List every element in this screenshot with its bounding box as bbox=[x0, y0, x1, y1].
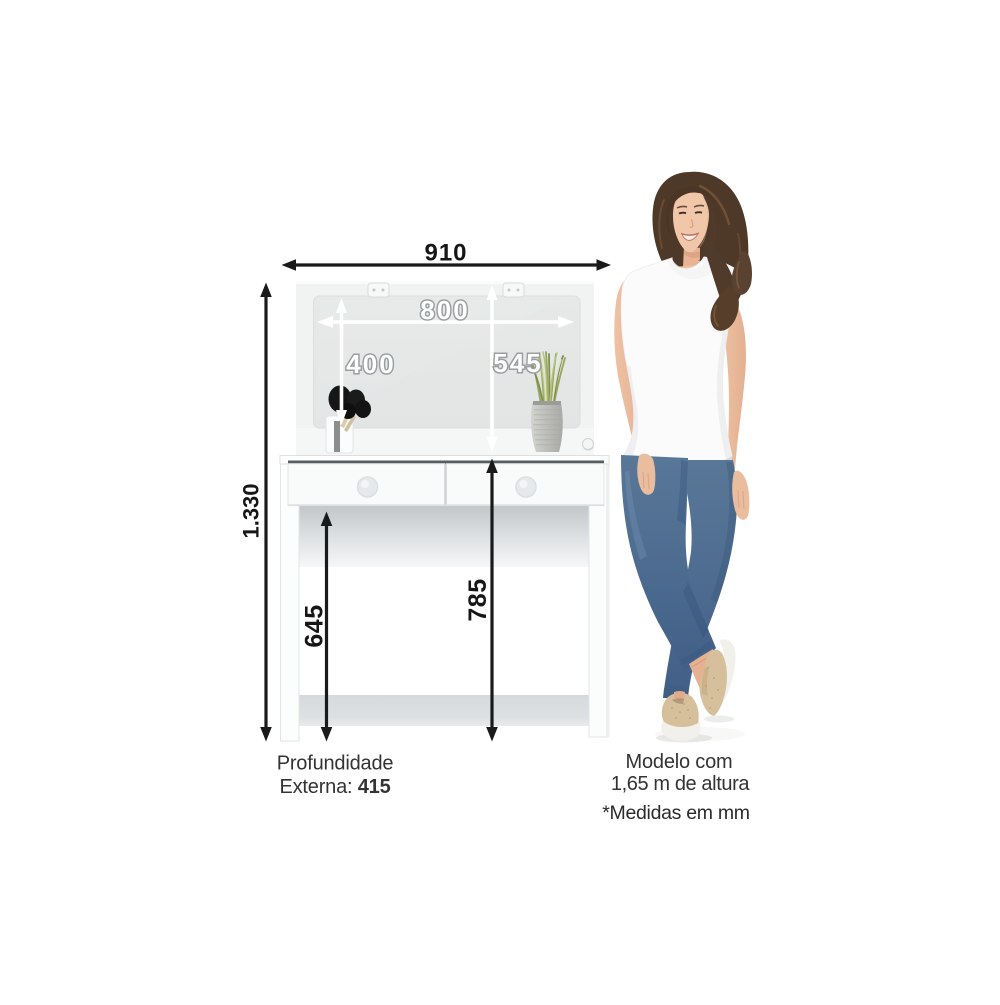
svg-text:400: 400 bbox=[346, 349, 395, 379]
svg-text:Modelo com: Modelo com bbox=[626, 751, 733, 773]
svg-text:545: 545 bbox=[493, 348, 542, 378]
svg-text:*Medidas em mm: *Medidas em mm bbox=[602, 802, 750, 824]
svg-text:645: 645 bbox=[301, 604, 329, 647]
svg-text:1.330: 1.330 bbox=[239, 483, 264, 538]
svg-text:910: 910 bbox=[424, 240, 467, 267]
svg-text:1,65 m de altura: 1,65 m de altura bbox=[611, 773, 750, 795]
svg-text:785: 785 bbox=[464, 578, 492, 621]
svg-text:Externa: 415: Externa: 415 bbox=[279, 776, 390, 798]
svg-text:800: 800 bbox=[420, 295, 469, 325]
svg-text:Profundidade: Profundidade bbox=[277, 753, 394, 775]
